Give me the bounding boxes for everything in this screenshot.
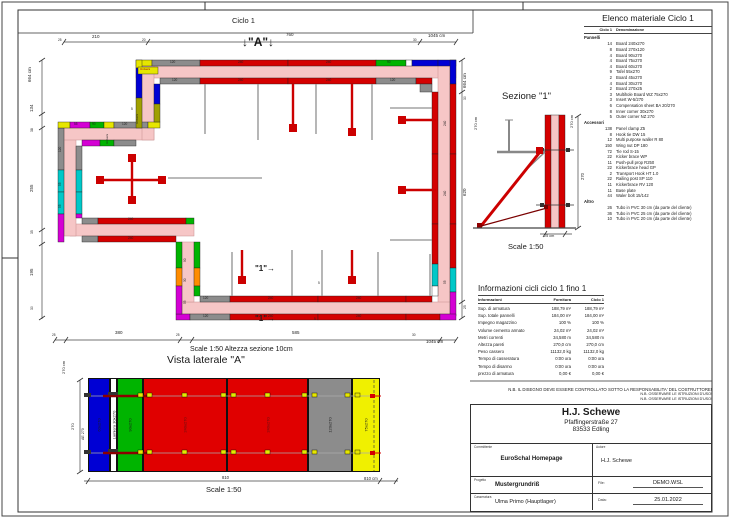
- info-row: Sup. di armatura188,79 m²188,79 m²: [478, 305, 604, 312]
- file-cell: File: DEMO.WSL: [593, 477, 711, 493]
- dim-label: 30: [464, 96, 467, 100]
- client-label: Committente: [474, 445, 492, 449]
- dim-label: 195: [30, 268, 35, 276]
- dim-label: 120: [59, 147, 62, 152]
- dim-label: 38: [31, 128, 34, 132]
- dim-label: 35: [31, 230, 34, 234]
- dim-label: 90: [92, 123, 96, 126]
- elevation-panel: 90x270: [117, 378, 143, 472]
- date-cell: Data: 25.01.2022: [593, 494, 711, 510]
- dim-label: 30: [413, 39, 417, 42]
- info-row: Volume cemento armato24,02 m³24,02 m³: [478, 327, 604, 334]
- dim-label: 55: [59, 182, 62, 186]
- file-value: DEMO.WSL: [633, 480, 703, 488]
- dim-label: 25 cm: [544, 235, 554, 239]
- dim-label: 380: [115, 331, 123, 336]
- formwork-label: Casseratura: [474, 495, 491, 499]
- elevation-scale: Scale 1:50: [206, 486, 241, 494]
- elevation-panel-label: 60x270: [97, 418, 102, 431]
- elevation-panel: 240x270: [143, 378, 227, 472]
- dim-label: 240: [128, 237, 133, 240]
- elevation-panel-label: 90x270: [128, 418, 133, 431]
- title-block: H.J. Schewe Pfaffingerstraße 27 83533 Ed…: [470, 404, 712, 512]
- dim-label: 30: [184, 278, 187, 282]
- section-title: Sezione "1": [502, 92, 551, 102]
- project-value: Mustergrundriß: [495, 482, 539, 488]
- material-col-name: Denominazione: [616, 28, 644, 32]
- date-label: Data:: [598, 498, 607, 502]
- dim-label: Univers: [106, 134, 109, 144]
- elevation-title: Vista laterale "A": [167, 355, 245, 366]
- dim-label: 240: [268, 297, 273, 300]
- dim-label: 210: [92, 35, 100, 40]
- company-header: H.J. Schewe Pfaffingerstraße 27 83533 Ed…: [471, 405, 711, 444]
- dim-label: 120: [172, 79, 177, 82]
- plan-scale-note: Scale 1:50 Altezza sezione 10cm: [190, 346, 293, 353]
- dim-label: 25: [464, 305, 467, 309]
- elevation-panel-label: 240x270: [183, 417, 188, 432]
- dim-label: 25: [52, 334, 56, 337]
- dim-label: 25: [176, 334, 180, 337]
- author-cell: Autore H.J. Schewe: [593, 444, 711, 476]
- info-row: Altezza pareti270,0 cm270,0 cm: [478, 341, 604, 348]
- plan-title: Ciclo 1: [232, 17, 255, 25]
- dim-label: 810: [222, 476, 229, 480]
- dim-label: 120: [390, 79, 395, 82]
- dim-label: "1"→: [255, 265, 275, 273]
- info-row: Sup. totale pannelli184,00 m²184,00 m²: [478, 312, 604, 319]
- info-row: Peso cassero11132,0 kg11132,0 kg: [478, 348, 604, 355]
- material-item: 10Tubo in PVC 20 cm (da parte del client…: [584, 216, 712, 222]
- dim-label: 120: [170, 61, 175, 64]
- dim-label: Univers: [140, 68, 150, 71]
- dim-label: 240: [326, 79, 331, 82]
- section-scale: Scale 1:50: [508, 243, 543, 251]
- dim-label: 240: [444, 121, 447, 126]
- dim-label: 120: [203, 297, 208, 300]
- file-label: File:: [598, 481, 605, 485]
- project-cell: Progetto Mustergrundriß: [471, 477, 593, 493]
- elevation-panel: 120x270: [308, 378, 352, 472]
- dim-label: 55: [184, 300, 187, 304]
- dim-label: 270 cm: [474, 117, 478, 130]
- elevation-panel-label: Lamiera 30x270: [111, 411, 116, 440]
- client-value: EuroSchal Homepage: [471, 456, 592, 462]
- client-cell: Committente EuroSchal Homepage: [471, 444, 593, 476]
- author-value: H.J. Schewe: [601, 458, 632, 464]
- dim-label: 240: [238, 79, 243, 82]
- dim-label: 664 cm: [28, 67, 33, 82]
- elevation-panel-label: 240x270: [265, 417, 270, 432]
- dim-label: 270 cm: [570, 115, 574, 128]
- dim-label: 810 cm: [364, 477, 378, 481]
- dim-label: 5: [131, 108, 133, 111]
- formwork-value: Ulma Primo (Hauptlager): [495, 499, 556, 505]
- dim-label: 90: [184, 258, 187, 262]
- dim-label: 760: [286, 33, 294, 38]
- dim-label: 30: [412, 334, 416, 337]
- dim-label: 1045 cm: [428, 34, 445, 39]
- date-value: 25.01.2022: [633, 497, 703, 505]
- dim-label: 5: [314, 318, 316, 321]
- elevation-panel: 75x270: [352, 378, 380, 472]
- dim-label: 240: [128, 218, 133, 221]
- dim-label: 55: [444, 280, 447, 284]
- dim-label: 240: [326, 61, 331, 64]
- disclaimer-line: N.B. OSSERVARE LE ISTRUZIONI D'USO!: [400, 397, 712, 402]
- dim-label: 585: [292, 331, 300, 336]
- material-list-title: Elenco materiale Ciclo 1: [584, 13, 712, 23]
- dim-label: 620: [463, 188, 468, 196]
- material-list: Elenco materiale Ciclo 1 Ciclo 1 Denomin…: [584, 13, 712, 222]
- dim-label: 5: [318, 282, 320, 285]
- formwork-cell: Casseratura Ulma Primo (Hauptlager): [471, 494, 593, 510]
- dim-label: 134: [30, 104, 35, 112]
- dim-label: 120: [122, 123, 127, 126]
- elevation-panel: Lamiera 30x270: [110, 378, 117, 472]
- company-address-city: 83533 Edling: [471, 426, 711, 433]
- disclaimer-notes: N.B. IL DISEGNO DEVE ESSERE CONTROLLATO …: [400, 387, 712, 402]
- elevation-panel: 60x270: [88, 378, 110, 472]
- elevation-panel-label: 75x270: [364, 418, 369, 431]
- dim-label: 240: [238, 61, 243, 64]
- author-label: Autore: [596, 445, 605, 449]
- info-row: Tempo di disarmo0:00 ora0:00 ora: [478, 363, 604, 370]
- dim-label: 255: [30, 184, 35, 192]
- dim-label: 664 cm: [463, 73, 468, 88]
- dim-label: 90: [387, 61, 391, 64]
- info-col-label: Informazioni: [478, 297, 538, 302]
- company-name: H.J. Schewe: [471, 407, 711, 419]
- company-address-street: Pfaffingerstraße 27: [471, 419, 711, 426]
- material-list-header: Ciclo 1 Denominazione: [584, 26, 712, 34]
- dim-label: 270: [71, 423, 75, 430]
- cycle-info-header: Informazioni Fornitura Ciclo 1: [478, 295, 604, 304]
- project-label: Progetto: [474, 478, 486, 482]
- drawing-sheet: 60x270Lamiera 30x27090x270240x270240x270…: [0, 0, 730, 519]
- info-row: Impegno magazzino100 %100 %: [478, 319, 604, 326]
- info-row: Tempo di casseratura0:00 ora0:00 ora: [478, 355, 604, 362]
- cycle-info-title: Informazioni cicli ciclo 1 fino 1: [478, 284, 604, 293]
- info-col-ciclo: Ciclo 1: [571, 297, 604, 302]
- info-col-fornitura: Fornitura: [538, 297, 571, 302]
- dim-label: 1045 cm: [426, 340, 443, 345]
- material-col-cycle: Ciclo 1: [584, 28, 612, 32]
- dim-label: 240: [356, 297, 361, 300]
- cycle-info-table: Informazioni cicli ciclo 1 fino 1 Inform…: [478, 284, 604, 377]
- elevation-panel-label: 120x270: [328, 417, 333, 432]
- dim-label: 25: [58, 39, 62, 42]
- dim-label: 240: [444, 191, 447, 196]
- elevation-panels: 60x270Lamiera 30x27090x270240x270240x270…: [88, 378, 380, 472]
- dim-label: 20: [142, 39, 146, 42]
- dim-label: 55: [74, 123, 78, 126]
- elevation-panel: 240x270: [227, 378, 308, 472]
- dim-label: 240: [356, 315, 361, 318]
- dim-label: 55: [59, 204, 62, 208]
- dim-label: 30: [31, 306, 34, 310]
- info-row: prezzo di armatura0,00 €0,00 €: [478, 370, 604, 377]
- dim-label: 120: [203, 315, 208, 318]
- dim-label: Univers: [136, 114, 139, 124]
- section-a-marker: ↓"A"↓: [242, 36, 274, 48]
- dim-label: AE 270: [82, 428, 86, 440]
- dim-label: 270 cm: [62, 361, 66, 374]
- dim-label: 240: [268, 315, 273, 318]
- info-row: Metri correnti34,580 m34,580 m: [478, 334, 604, 341]
